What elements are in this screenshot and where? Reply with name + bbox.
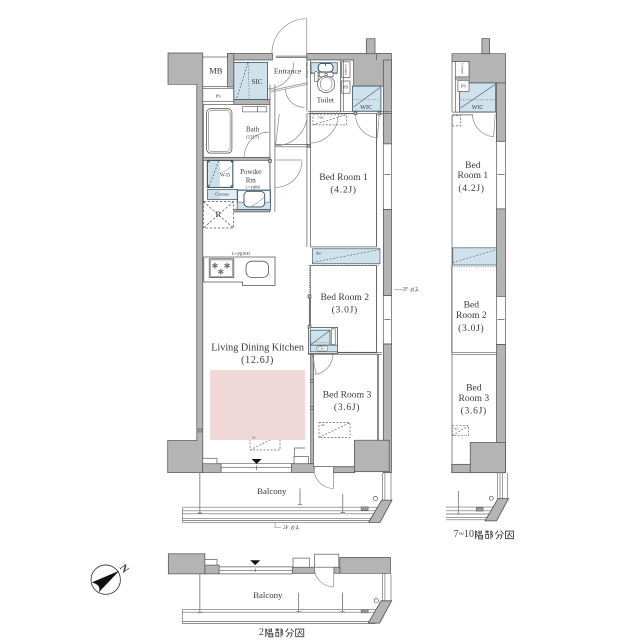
svg-text:AC: AC (252, 436, 256, 440)
svg-text:Clo.: Clo. (318, 345, 325, 350)
svg-text:Sto: Sto (316, 251, 321, 256)
svg-text:Bed Room 3: Bed Room 3 (323, 390, 372, 401)
svg-text:WIC: WIC (360, 104, 372, 111)
svg-text:Bed Room 1: Bed Room 1 (319, 172, 368, 183)
svg-text:Counter: Counter (215, 191, 230, 196)
svg-text:R: R (215, 209, 221, 219)
svg-text:(12.6J): (12.6J) (241, 355, 274, 366)
svg-text:Balcony: Balcony (257, 486, 287, 496)
svg-text:MB: MB (209, 65, 223, 75)
svg-text:Toilet: Toilet (317, 96, 335, 105)
svg-text:900: 900 (254, 184, 260, 189)
svg-text:Living Dining Kitchen: Living Dining Kitchen (211, 342, 304, 353)
svg-text:Entrance: Entrance (274, 67, 302, 76)
svg-text:Shoes Rack: Shoes Rack (305, 62, 309, 78)
svg-text:(3.0J): (3.0J) (458, 323, 484, 334)
svg-text:Counter: Counter (460, 63, 464, 75)
svg-text:SIC: SIC (251, 77, 262, 86)
svg-text:(3.6J): (3.6J) (461, 406, 487, 417)
svg-text:F&C: F&C (318, 116, 324, 120)
svg-text:Room 3: Room 3 (458, 393, 489, 404)
svg-text:(3.0J): (3.0J) (332, 305, 358, 316)
svg-text:Balcony: Balcony (253, 590, 283, 600)
svg-text:PS: PS (216, 93, 222, 98)
svg-text:Bed Room 2: Bed Room 2 (321, 292, 370, 303)
svg-text:AC: AC (454, 426, 458, 430)
svg-text:W-D: W-D (220, 174, 230, 179)
svg-text:(4.2J): (4.2J) (330, 185, 356, 196)
svg-text:2: 2 (259, 627, 264, 638)
svg-text:Room 1: Room 1 (457, 170, 488, 181)
svg-text:(3.6J): (3.6J) (334, 402, 360, 413)
svg-text:(4.2J): (4.2J) (458, 183, 484, 194)
svg-text:PS: PS (343, 84, 349, 89)
svg-text:(1317): (1317) (246, 136, 259, 141)
svg-text:2F: 2F (403, 288, 409, 293)
svg-text:L=: L= (246, 184, 251, 189)
svg-text:1,800: 1,800 (240, 251, 251, 257)
svg-text:WIC: WIC (472, 105, 484, 111)
svg-text:Bath: Bath (246, 126, 260, 134)
svg-text:PS: PS (461, 83, 467, 88)
svg-text:7~10: 7~10 (454, 529, 474, 540)
svg-text:L=: L= (232, 251, 238, 256)
svg-text:Counter: Counter (344, 64, 348, 76)
svg-text:Rm: Rm (246, 177, 257, 185)
svg-text:Room 2: Room 2 (456, 310, 487, 321)
svg-text:2F: 2F (283, 526, 289, 531)
svg-text:AC: AC (321, 423, 325, 427)
svg-text:Powder: Powder (240, 168, 262, 176)
